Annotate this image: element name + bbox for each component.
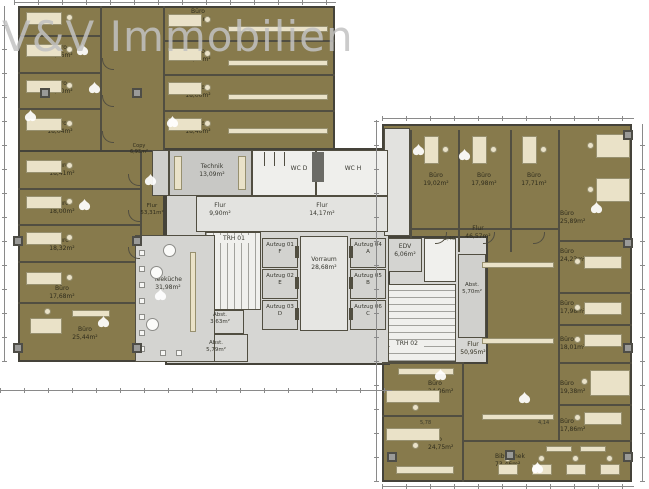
- chair: [442, 146, 449, 153]
- room-label-wc-h: WC H: [338, 165, 368, 173]
- chair: [412, 442, 419, 449]
- floor-plan: Büro16,46m² Büro18,90m² Büro18,04m² Büro…: [0, 0, 649, 489]
- dimension-line: [0, 388, 392, 393]
- shaft-room: [424, 238, 456, 282]
- chair: [574, 304, 581, 311]
- sideboard: [396, 466, 454, 474]
- brand-watermark: V&V Immobilien: [2, 12, 354, 61]
- vv-logo-watermark: [97, 314, 110, 327]
- dimension-line: [374, 120, 379, 482]
- wall: [462, 440, 632, 442]
- desk: [584, 302, 622, 315]
- room-label-aufzug: Aufzug 04A: [350, 242, 386, 256]
- chair: [574, 414, 581, 421]
- column-marker: [13, 343, 23, 353]
- desk: [168, 82, 202, 95]
- column-marker: [132, 88, 142, 98]
- chair: [587, 142, 594, 149]
- wall: [163, 74, 335, 76]
- stool: [139, 266, 145, 272]
- wc-stall: [264, 152, 265, 166]
- room-label-technik: Technik13,09m²: [190, 163, 234, 178]
- dimension-line: [382, 484, 634, 489]
- wall: [18, 188, 140, 190]
- wall: [558, 404, 632, 406]
- stool: [176, 350, 182, 356]
- stool: [160, 350, 166, 356]
- chair: [587, 186, 594, 193]
- vv-logo-watermark: [590, 200, 603, 213]
- vv-logo-watermark: [144, 172, 157, 185]
- kitchen-counter: [190, 252, 196, 332]
- room-label-edv: EDV6,06m²: [388, 243, 422, 258]
- room-label-trh1: TRH 01: [216, 235, 252, 243]
- sideboard: [228, 94, 328, 100]
- desk: [522, 136, 537, 164]
- wall: [18, 302, 140, 304]
- room-label-flur-center: Flur14,17m²: [300, 202, 344, 217]
- chair: [581, 378, 588, 385]
- desk: [30, 318, 62, 334]
- vorraum-room: [300, 236, 348, 331]
- vv-logo-watermark: [78, 197, 91, 210]
- chair: [204, 84, 211, 91]
- sideboard: [228, 128, 328, 134]
- wall: [382, 362, 462, 364]
- desk: [386, 390, 440, 403]
- room-label-teekueche: Teeküche31,98m²: [140, 276, 196, 291]
- vv-logo-watermark: [434, 367, 447, 380]
- vv-logo-watermark: [531, 460, 544, 473]
- desk: [26, 196, 62, 209]
- dimension-number: 5,78: [420, 420, 431, 426]
- stool: [139, 250, 145, 256]
- round-table: [150, 266, 163, 279]
- wall: [558, 324, 632, 326]
- column-marker: [387, 452, 397, 462]
- wall: [558, 292, 632, 294]
- room-label-flur-small: Flur9,90m²: [202, 202, 238, 217]
- column-marker: [40, 88, 50, 98]
- column-marker: [13, 236, 23, 246]
- room-label-flur-east-top: Flur46,57m²: [460, 225, 496, 240]
- wall: [382, 415, 462, 417]
- stool: [139, 314, 145, 320]
- chair: [490, 146, 497, 153]
- chair: [66, 234, 73, 241]
- dimension-number: 1,40: [444, 236, 455, 242]
- wall: [18, 261, 140, 263]
- wall: [18, 224, 140, 226]
- room-label-buero: Büro17,71m²: [512, 172, 556, 187]
- dimension-line: [14, 0, 336, 5]
- room-label-aufzug: Aufzug 02E: [262, 273, 298, 287]
- room-label-vorraum: Vorraum28,68m²: [300, 256, 348, 271]
- desk: [424, 136, 439, 164]
- round-table: [163, 244, 176, 257]
- room-label-buero: Büro17,68m²: [32, 285, 92, 300]
- round-table: [146, 318, 159, 331]
- column-marker: [623, 343, 633, 353]
- desk: [26, 272, 62, 285]
- wc-stall: [274, 152, 275, 166]
- chair: [540, 146, 547, 153]
- desk: [584, 256, 622, 269]
- wc-stall: [284, 152, 285, 166]
- technik-equipment: [174, 156, 182, 190]
- wall: [558, 240, 632, 242]
- room-label-buero: Büro17,98m²: [462, 172, 506, 187]
- sideboard: [482, 262, 554, 268]
- stairwell-2: [388, 284, 456, 362]
- room-label-trh2: TRH 02: [390, 340, 424, 348]
- library-table: [498, 464, 518, 475]
- chair: [44, 308, 51, 315]
- stool: [139, 282, 145, 288]
- column-marker: [623, 238, 633, 248]
- room-label-aufzug: Aufzug 06C: [350, 304, 386, 318]
- desk: [584, 412, 622, 425]
- column-marker: [132, 343, 142, 353]
- chair: [574, 258, 581, 265]
- chair: [66, 274, 73, 281]
- wall: [510, 130, 512, 252]
- room-label-wc-d: WC D: [284, 165, 314, 173]
- room-label-copy: Copy6,93m²: [122, 143, 156, 156]
- vv-logo-watermark: [88, 80, 101, 93]
- desk: [26, 160, 62, 173]
- meeting-table: [590, 370, 630, 396]
- chair: [66, 162, 73, 169]
- chair: [66, 198, 73, 205]
- room-label-abst-a: Abst.3,63m²: [200, 312, 240, 326]
- room-label-abst-c: Abst.5,70m²: [456, 282, 488, 296]
- vv-logo-watermark: [24, 108, 37, 121]
- wall: [163, 110, 335, 112]
- sideboard: [546, 446, 572, 452]
- chair: [412, 404, 419, 411]
- room-label-abst-b: Abst.5,79m²: [196, 340, 236, 354]
- desk: [26, 232, 62, 245]
- chair: [606, 455, 613, 462]
- chair: [574, 336, 581, 343]
- column-marker: [132, 236, 142, 246]
- stool: [139, 298, 145, 304]
- library-table: [566, 464, 586, 475]
- room-label-aufzug: Aufzug 01F: [262, 242, 298, 256]
- vv-logo-watermark: [518, 390, 531, 403]
- chair: [66, 120, 73, 127]
- wall: [18, 72, 100, 74]
- vv-logo-watermark: [166, 114, 179, 127]
- vv-logo-watermark: [458, 147, 471, 160]
- column-marker: [505, 450, 515, 460]
- room-label-buero: Büro19,02m²: [414, 172, 458, 187]
- desk: [386, 428, 440, 441]
- vv-logo-watermark: [412, 142, 425, 155]
- vv-logo-watermark: [154, 287, 167, 300]
- sideboard: [482, 338, 554, 344]
- room-label-aufzug: Aufzug 05B: [350, 273, 386, 287]
- dimension-line: [382, 116, 634, 121]
- wall: [558, 362, 632, 364]
- chair: [572, 455, 579, 462]
- column-marker: [623, 452, 633, 462]
- chair: [204, 120, 211, 127]
- technik-equipment: [238, 156, 246, 190]
- room-label-flur-west: Flur53,31m²: [136, 203, 168, 217]
- chair: [66, 82, 73, 89]
- library-table: [600, 464, 620, 475]
- meeting-table: [596, 178, 630, 202]
- dimension-line: [640, 124, 645, 482]
- desk: [472, 136, 487, 164]
- room-label-aufzug: Aufzug 03D: [262, 304, 298, 318]
- dimension-number: 4,14: [538, 420, 549, 426]
- desk: [584, 334, 622, 347]
- stool: [139, 330, 145, 336]
- sideboard: [580, 446, 606, 452]
- column-marker: [623, 130, 633, 140]
